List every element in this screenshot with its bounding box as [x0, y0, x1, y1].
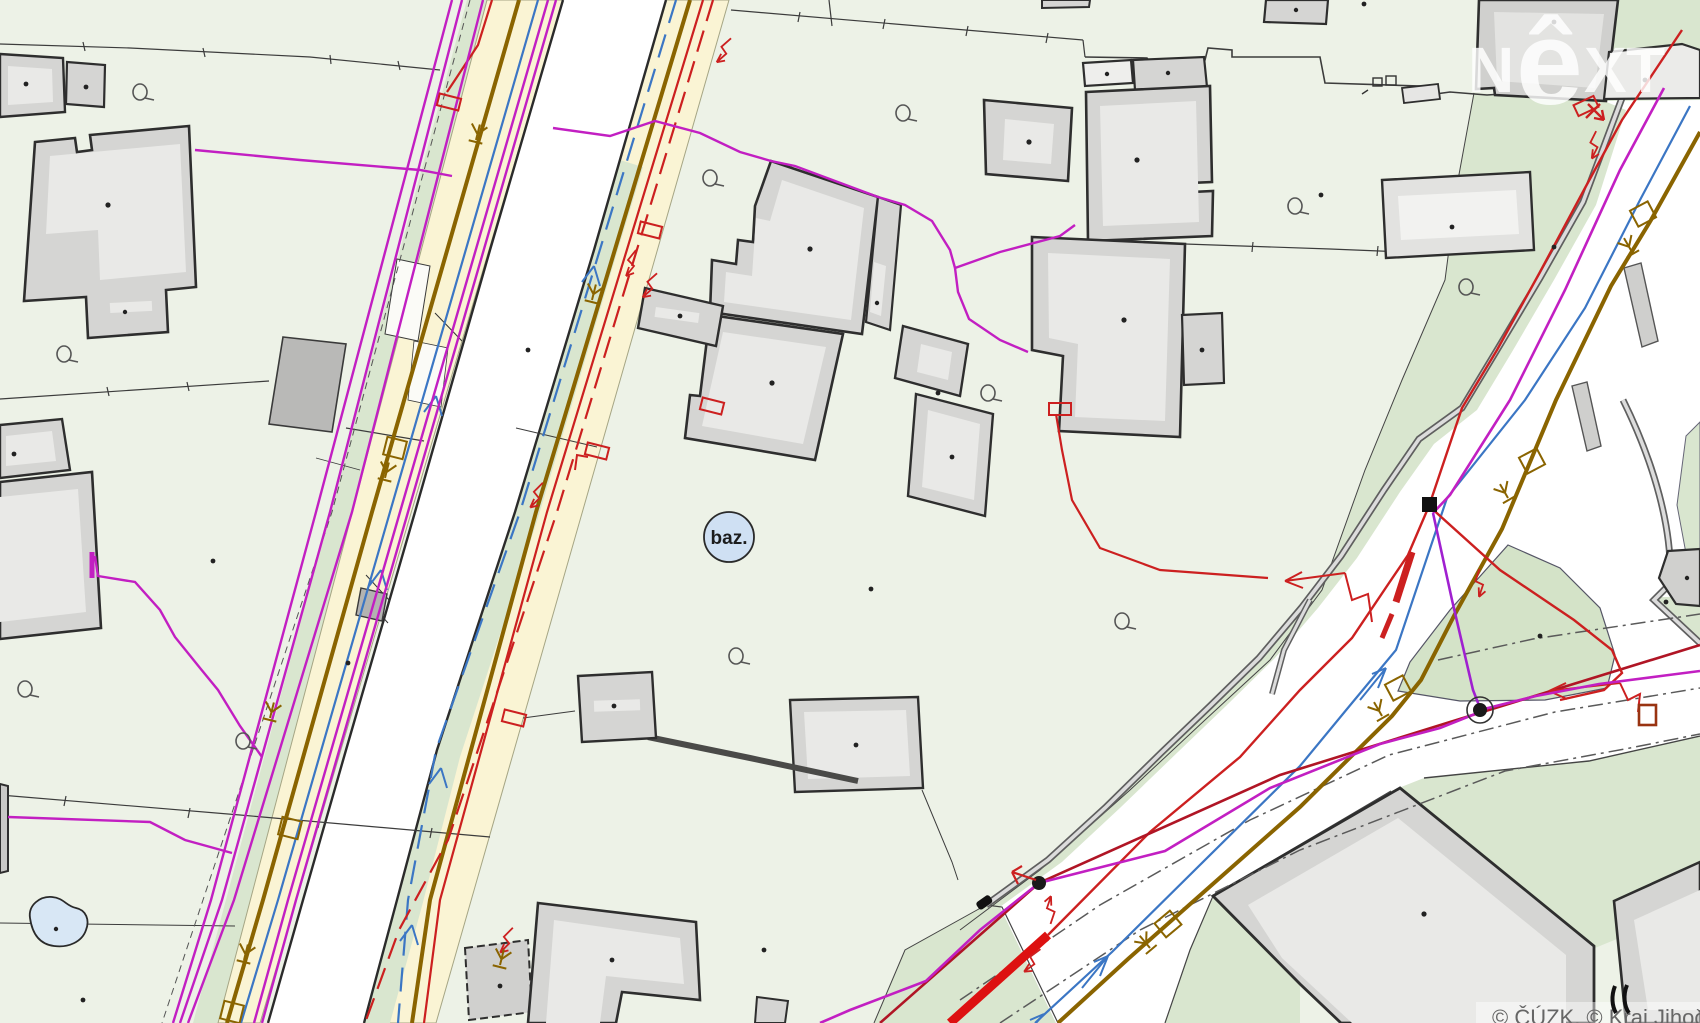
svg-text:X: X	[1584, 34, 1627, 106]
svg-text:N: N	[1468, 34, 1514, 106]
svg-text:baz.: baz.	[711, 528, 748, 549]
svg-text:T: T	[1626, 34, 1665, 106]
svg-text:ê: ê	[1516, 0, 1583, 130]
svg-text:© ČÚZK, © Kraj Jihoče: © ČÚZK, © Kraj Jihoče	[1492, 1005, 1700, 1023]
